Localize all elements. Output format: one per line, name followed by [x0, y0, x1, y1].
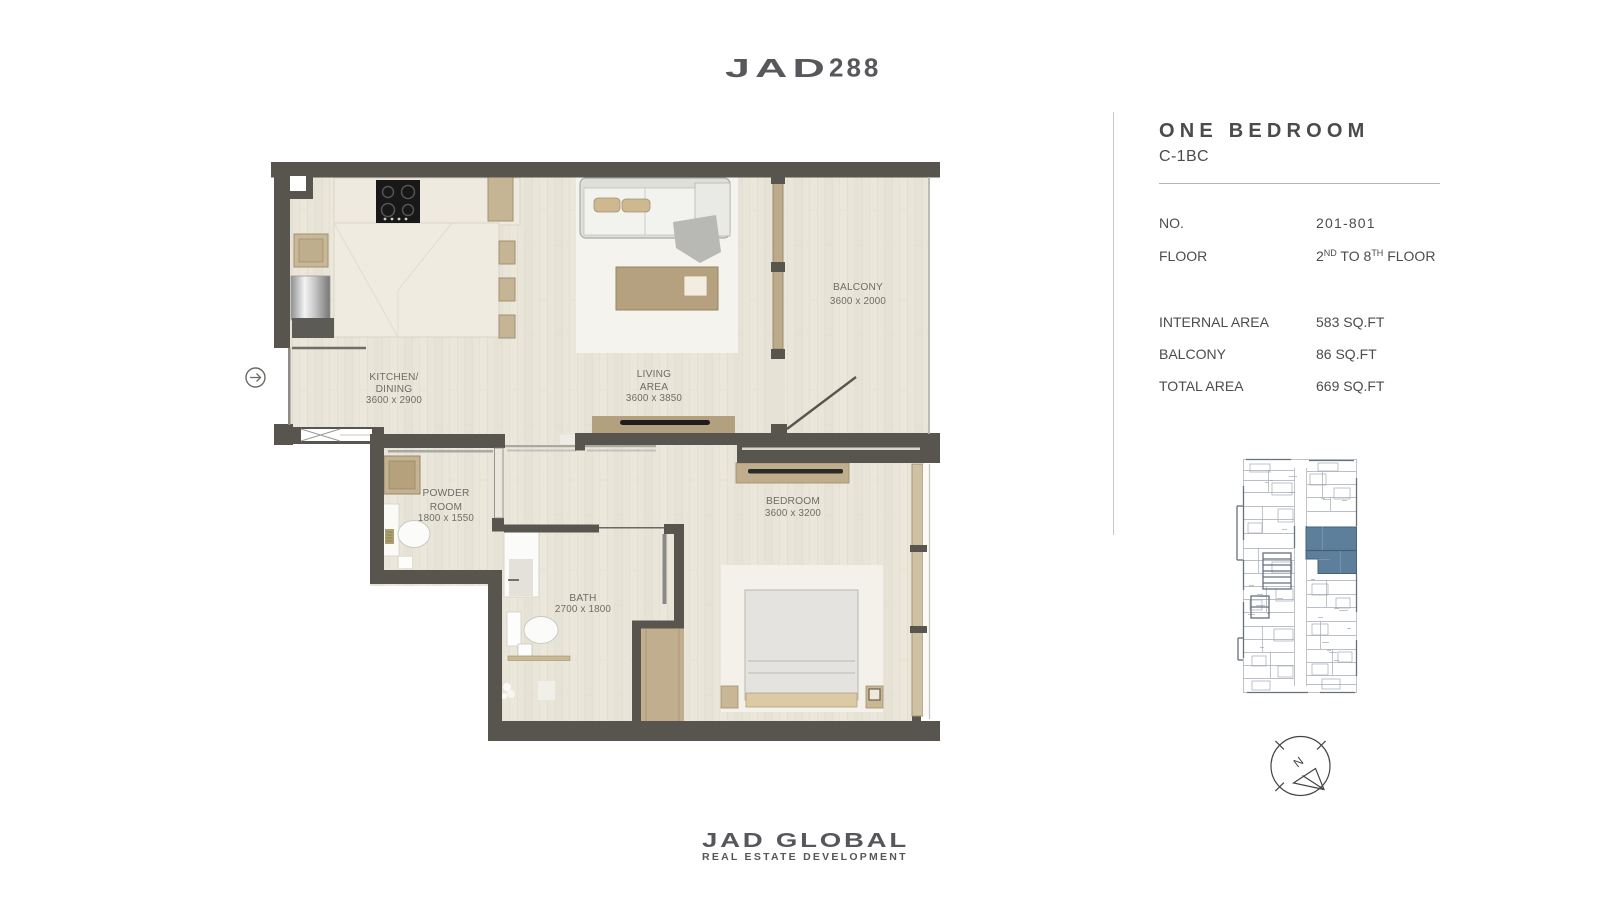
svg-text:288: 288	[829, 53, 881, 83]
svg-text:NO.: NO.	[1159, 215, 1184, 231]
svg-text:POWDER: POWDER	[422, 488, 469, 499]
svg-text:3600 x 3850: 3600 x 3850	[626, 393, 682, 404]
svg-text:KITCHEN/: KITCHEN/	[369, 372, 418, 383]
svg-text:669 SQ.FT: 669 SQ.FT	[1316, 378, 1385, 394]
svg-text:3600 x 3200: 3600 x 3200	[765, 508, 821, 519]
svg-text:583 SQ.FT: 583 SQ.FT	[1316, 314, 1385, 330]
svg-text:FLOOR: FLOOR	[1159, 248, 1207, 264]
svg-text:3600 x 2900: 3600 x 2900	[366, 395, 422, 406]
svg-text:JAD: JAD	[725, 54, 830, 83]
svg-text:86 SQ.FT: 86 SQ.FT	[1316, 346, 1377, 362]
svg-text:TOTAL AREA: TOTAL AREA	[1159, 378, 1244, 394]
svg-text:LIVING: LIVING	[637, 369, 672, 380]
svg-text:ONE BEDROOM: ONE BEDROOM	[1159, 120, 1370, 142]
svg-text:BEDROOM: BEDROOM	[766, 496, 820, 507]
svg-text:INTERNAL AREA: INTERNAL AREA	[1159, 314, 1270, 330]
svg-text:ROOM: ROOM	[430, 502, 463, 513]
svg-text:REAL ESTATE DEVELOPMENT: REAL ESTATE DEVELOPMENT	[702, 851, 908, 863]
svg-text:BALCONY: BALCONY	[833, 282, 883, 293]
svg-text:2700 x 1800: 2700 x 1800	[555, 604, 611, 615]
svg-text:AREA: AREA	[640, 382, 669, 393]
svg-text:C-1BC: C-1BC	[1159, 148, 1209, 165]
svg-text:1800 x 1550: 1800 x 1550	[418, 513, 474, 524]
svg-text:JAD GLOBAL: JAD GLOBAL	[702, 830, 909, 852]
svg-text:3600 x 2000: 3600 x 2000	[830, 296, 886, 307]
svg-text:BALCONY: BALCONY	[1159, 346, 1227, 362]
svg-text:BATH: BATH	[569, 593, 596, 604]
svg-text:201-801: 201-801	[1316, 215, 1376, 231]
svg-text:DINING: DINING	[376, 384, 413, 395]
